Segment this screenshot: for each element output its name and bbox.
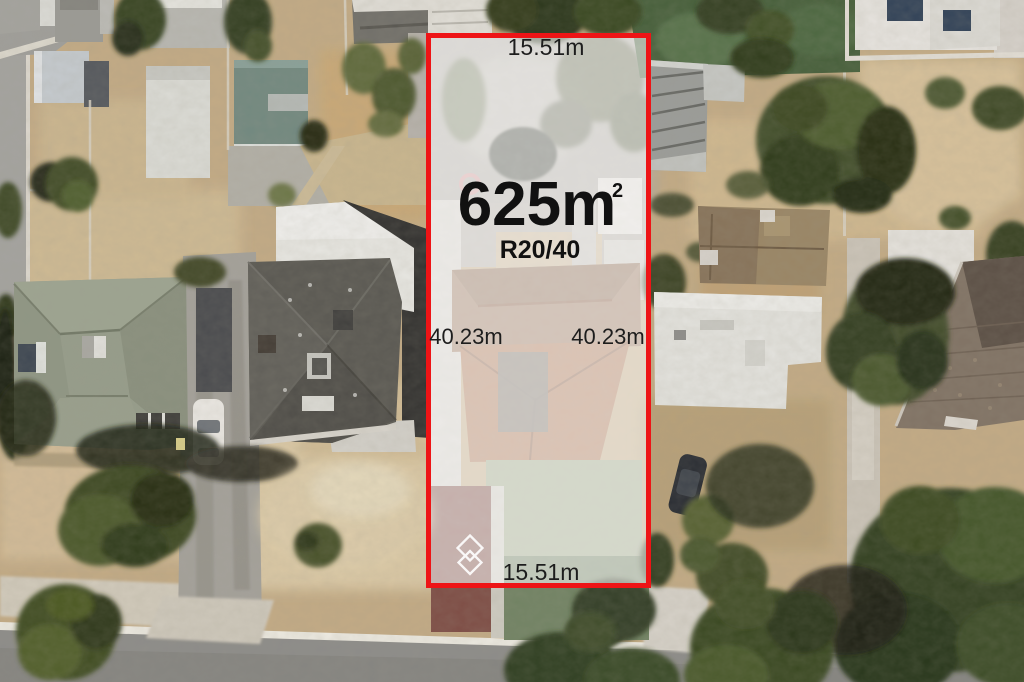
svg-text:40.23m: 40.23m — [571, 324, 644, 349]
svg-text:R20/40: R20/40 — [500, 236, 581, 264]
svg-text:15.51m: 15.51m — [503, 559, 580, 585]
svg-text:2: 2 — [612, 180, 623, 202]
svg-text:40.23m: 40.23m — [429, 324, 502, 349]
svg-text:15.51m: 15.51m — [508, 34, 585, 60]
svg-text:625m: 625m — [458, 170, 617, 239]
